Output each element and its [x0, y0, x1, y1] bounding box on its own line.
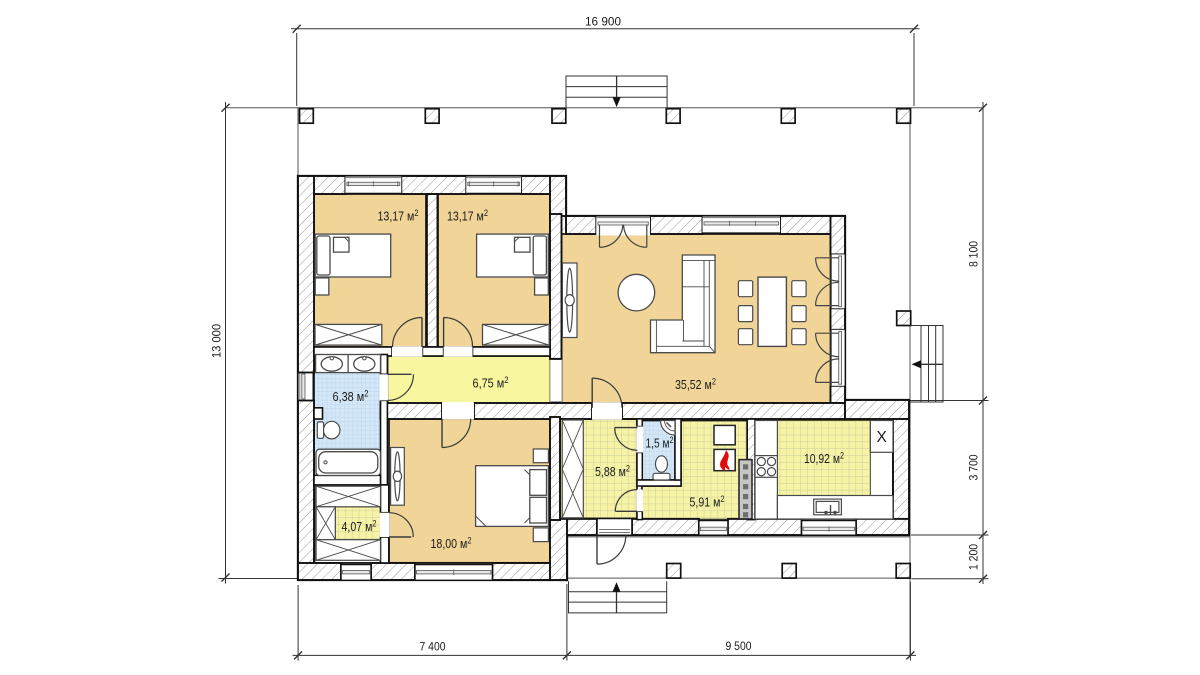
svg-text:6,75 м2: 6,75 м2 [473, 375, 509, 391]
svg-text:8 100: 8 100 [967, 241, 981, 267]
svg-text:1,5 м2: 1,5 м2 [646, 435, 674, 451]
svg-text:18,00 м2: 18,00 м2 [431, 536, 472, 552]
svg-text:16 900: 16 900 [585, 15, 621, 29]
svg-text:7 400: 7 400 [420, 640, 446, 654]
svg-text:5,91 м2: 5,91 м2 [690, 494, 725, 510]
svg-text:6,38 м2: 6,38 м2 [333, 389, 369, 405]
svg-text:13 000: 13 000 [210, 324, 224, 358]
svg-text:9 500: 9 500 [726, 639, 752, 653]
svg-text:13,17 м2: 13,17 м2 [378, 208, 419, 224]
svg-text:35,52 м2: 35,52 м2 [675, 377, 716, 393]
svg-text:13,17 м2: 13,17 м2 [447, 208, 488, 224]
svg-text:10,92 м2: 10,92 м2 [804, 451, 844, 467]
svg-text:3 700: 3 700 [967, 454, 981, 480]
svg-text:X: X [877, 429, 888, 446]
svg-text:5,88 м2: 5,88 м2 [595, 464, 630, 480]
svg-text:1 200: 1 200 [967, 544, 981, 570]
svg-text:4,07 м2: 4,07 м2 [342, 519, 377, 535]
